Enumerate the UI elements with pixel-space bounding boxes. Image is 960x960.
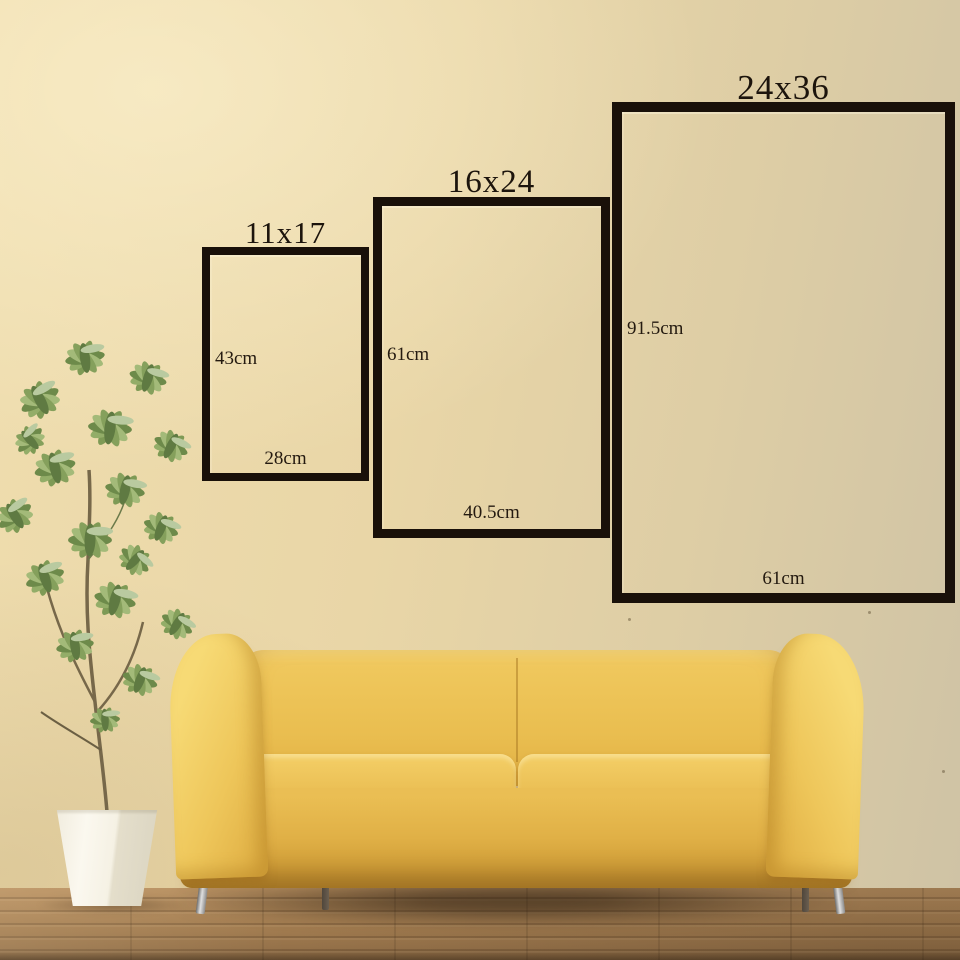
height-dimension-label: 91.5cm xyxy=(627,319,683,338)
size-frame-title: 11x17 xyxy=(245,217,326,248)
wall-speck xyxy=(868,611,871,614)
yellow-sofa xyxy=(168,626,864,926)
size-frame-16x24: 16x24 61cm 40.5cm xyxy=(373,197,610,538)
width-dimension-label: 40.5cm xyxy=(463,503,519,522)
size-frame-11x17: 11x17 43cm 28cm xyxy=(202,247,369,481)
sofa-right-arm xyxy=(766,632,866,879)
wall-speck xyxy=(628,618,631,621)
height-dimension-label: 43cm xyxy=(215,349,257,368)
wall-speck xyxy=(942,770,945,773)
size-frame-title: 24x36 xyxy=(737,70,830,105)
size-frame-title: 16x24 xyxy=(448,166,536,199)
room-scene: 11x17 43cm 28cm 16x24 61cm 40.5cm 24x36 … xyxy=(0,0,960,960)
sofa-backrest-seam xyxy=(516,658,518,762)
potted-plant-foliage xyxy=(0,320,220,820)
sofa-base xyxy=(180,788,852,888)
sofa-back-right-leg xyxy=(802,884,809,912)
width-dimension-label: 61cm xyxy=(762,569,804,588)
height-dimension-label: 61cm xyxy=(387,345,429,364)
width-dimension-label: 28cm xyxy=(264,449,306,468)
size-frame-24x36: 24x36 91.5cm 61cm xyxy=(612,102,955,603)
